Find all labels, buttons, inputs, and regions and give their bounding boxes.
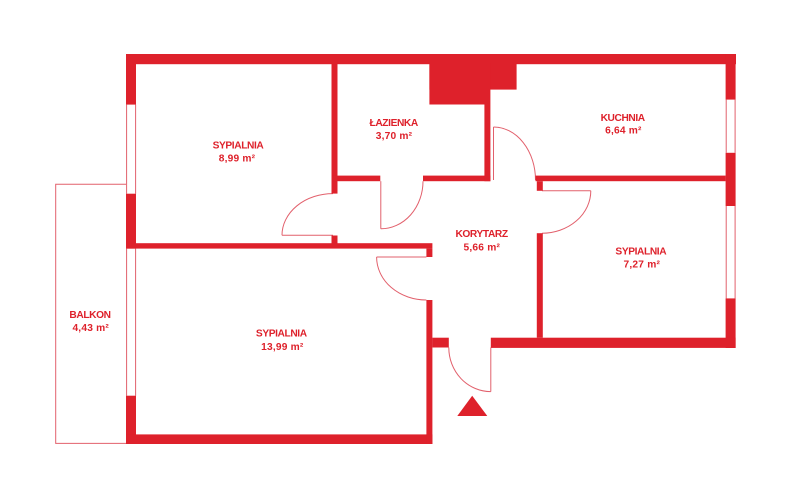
svg-text:SYPIALNIA: SYPIALNIA: [256, 328, 308, 339]
svg-text:ŁAZIENKA: ŁAZIENKA: [370, 118, 419, 129]
svg-text:KUCHNIA: KUCHNIA: [601, 113, 646, 124]
svg-text:BALKON: BALKON: [69, 310, 110, 321]
svg-text:8,99 m²: 8,99 m²: [219, 154, 256, 165]
svg-text:13,99 m²: 13,99 m²: [261, 342, 304, 353]
svg-text:SYPIALNIA: SYPIALNIA: [615, 247, 667, 258]
svg-text:4,43 m²: 4,43 m²: [72, 323, 109, 334]
svg-text:5,66 m²: 5,66 m²: [464, 242, 501, 253]
svg-text:6,64 m²: 6,64 m²: [605, 125, 642, 136]
svg-text:SYPIALNIA: SYPIALNIA: [213, 140, 265, 151]
svg-text:3,70 m²: 3,70 m²: [376, 131, 413, 142]
svg-text:KORYTARZ: KORYTARZ: [455, 229, 507, 240]
svg-text:7,27 m²: 7,27 m²: [624, 260, 661, 271]
